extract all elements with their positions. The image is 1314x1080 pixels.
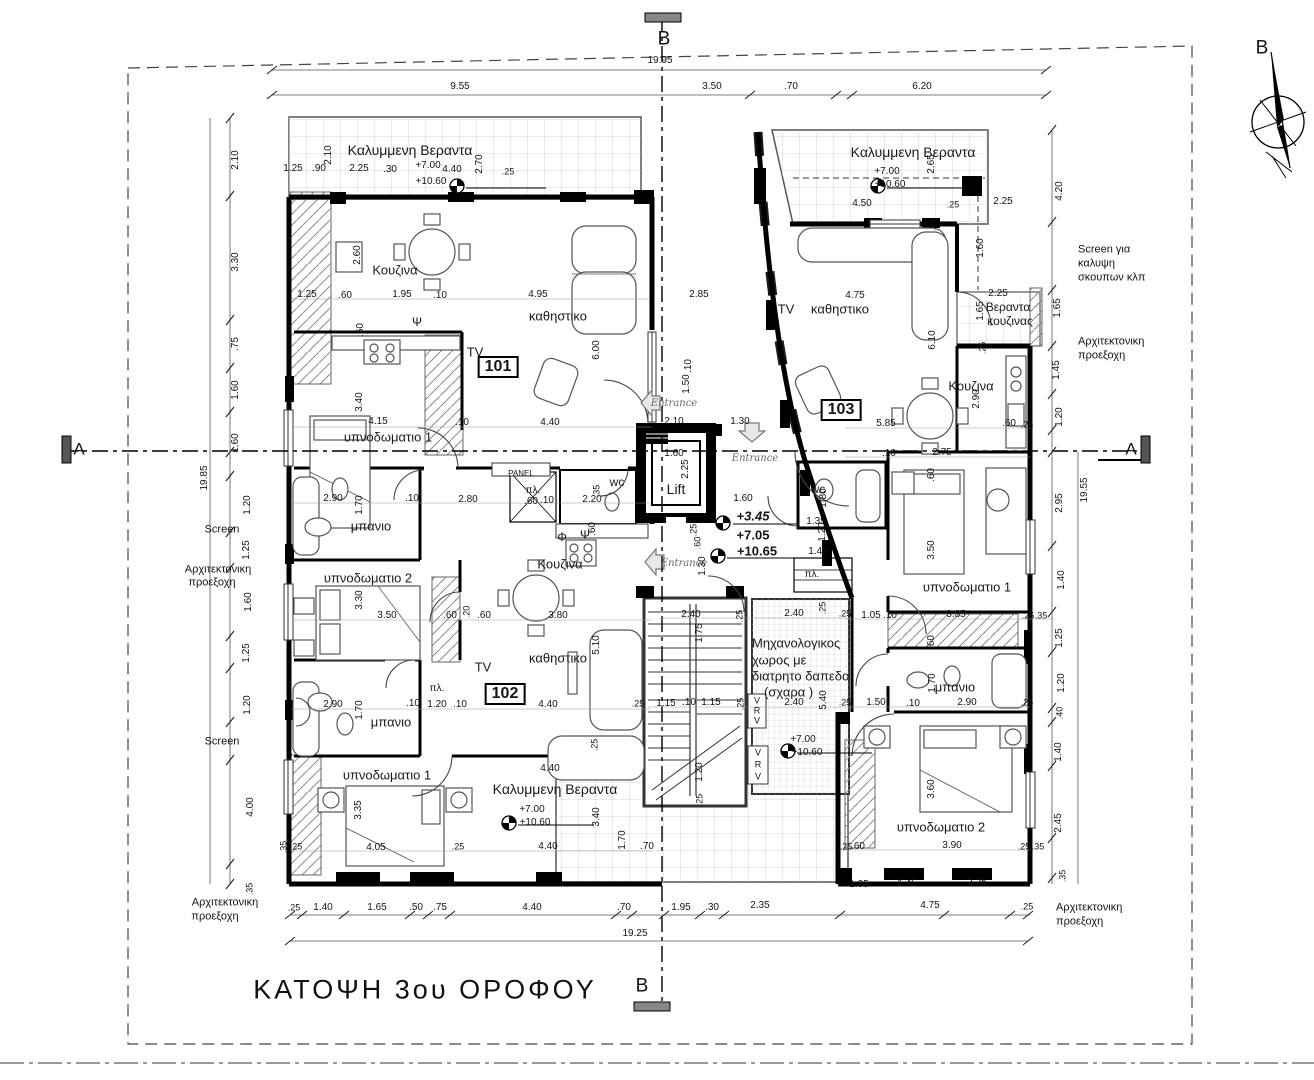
sink bbox=[305, 518, 331, 536]
toilet bbox=[944, 666, 960, 686]
floor-plan-drawing bbox=[0, 0, 1314, 1080]
bed bbox=[318, 786, 472, 866]
kitchen-counter bbox=[556, 524, 648, 566]
floor-plan-sheet: ΚΑΤΟΨΗ 3ου ΟΡΟΦΟΥBBBAA19.959.553.50.706.… bbox=[0, 0, 1314, 1080]
bathtub bbox=[293, 682, 319, 756]
sofa bbox=[532, 226, 636, 408]
bathtub bbox=[293, 477, 319, 555]
staircase bbox=[644, 598, 746, 806]
dining-table bbox=[394, 214, 470, 290]
bed bbox=[294, 586, 420, 660]
toilet bbox=[332, 478, 348, 500]
sink bbox=[308, 693, 332, 711]
lift-shaft bbox=[636, 423, 716, 525]
sofa bbox=[548, 630, 644, 780]
bed bbox=[892, 468, 1026, 574]
bathtub bbox=[856, 470, 880, 522]
bed bbox=[864, 726, 1026, 812]
north-compass-icon bbox=[1250, 52, 1306, 178]
dining-table bbox=[498, 560, 574, 636]
kitchen-counter bbox=[1006, 356, 1026, 448]
toilet bbox=[337, 713, 353, 735]
bathtub bbox=[992, 654, 1026, 708]
toilet bbox=[815, 479, 833, 501]
sink bbox=[907, 672, 929, 688]
